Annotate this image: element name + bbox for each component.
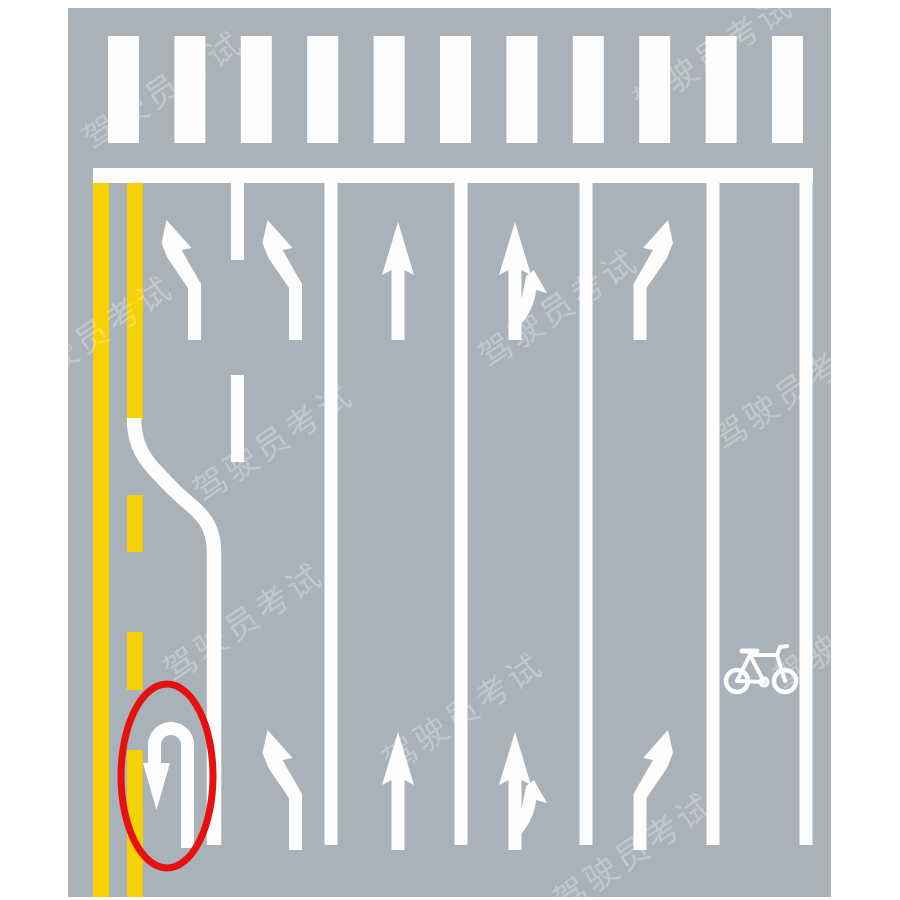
crosswalk-stripe <box>772 36 803 143</box>
crosswalk-stripe <box>506 36 537 143</box>
lane-divider-5-bike <box>707 183 720 845</box>
crosswalk-stripe <box>307 36 338 143</box>
stop-line <box>93 168 813 183</box>
yellow-line-outer <box>93 183 109 897</box>
crosswalk-stripe <box>374 36 405 143</box>
crosswalk-stripe <box>573 36 604 143</box>
lane-divider-2-3 <box>325 183 338 845</box>
yellow-line-inner-dash <box>127 632 143 690</box>
road-diagram: 驾驶员考试驾驶员考试驾驶员考试驾驶员考试驾驶员考试驾驶员考试驾驶员考试驾驶员考试… <box>0 0 900 900</box>
road-edge-line <box>800 183 813 845</box>
lane-divider-1-2 <box>231 183 244 260</box>
crosswalk-stripe <box>440 36 471 143</box>
road-diagram-stage: 驾驶员考试驾驶员考试驾驶员考试驾驶员考试驾驶员考试驾驶员考试驾驶员考试驾驶员考试… <box>0 0 900 900</box>
yellow-line-inner-dash <box>127 495 143 552</box>
lane-divider-3-4 <box>455 183 468 845</box>
